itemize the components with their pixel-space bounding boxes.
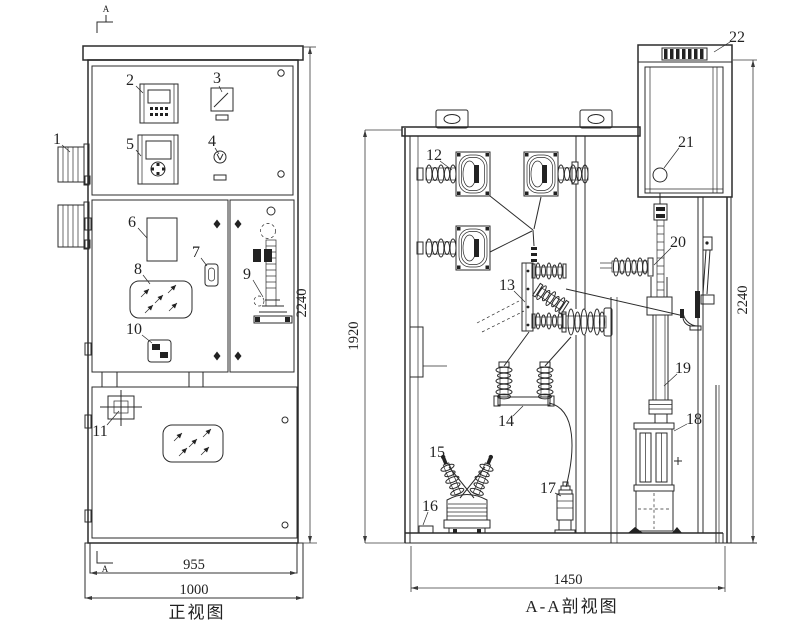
dim-1000: 1000 (180, 582, 209, 598)
cabinet-outline (83, 46, 303, 598)
callout-13: 13 (499, 277, 515, 294)
callout-7: 7 (192, 244, 200, 261)
cable-duct (410, 327, 423, 377)
observation-window (130, 281, 192, 318)
callout-20: 20 (670, 234, 686, 251)
callout-5: 5 (126, 136, 134, 153)
section-callouts: 12 13 14 15 16 17 18 19 20 21 22 (422, 29, 745, 525)
panel-meter (211, 88, 233, 120)
screw (282, 522, 288, 528)
instrument-door (92, 66, 293, 195)
control-switch (214, 151, 226, 180)
pressure-relief-duct (638, 45, 732, 197)
callout-1: 1 (53, 131, 61, 148)
callout-11: 11 (92, 423, 107, 440)
screw (278, 171, 284, 177)
callout-4: 4 (208, 133, 216, 150)
voltage-transformer (436, 452, 498, 533)
indicator-block (148, 340, 171, 362)
lower-door (92, 387, 297, 538)
drawing-page: A (0, 0, 787, 627)
dim-1920: 1920 (346, 322, 362, 351)
earthing-operation-port (100, 390, 142, 426)
callout-21: 21 (678, 134, 694, 151)
front-callouts: 1 2 3 4 5 6 7 8 9 10 11 (53, 70, 263, 440)
callout-10: 10 (126, 321, 142, 338)
front-view-title: 正视图 (169, 603, 226, 622)
screw (282, 417, 288, 423)
screw (278, 70, 284, 76)
inspection-hole (653, 168, 667, 182)
callout-22: 22 (729, 29, 745, 46)
callout-19: 19 (675, 360, 691, 377)
callout-18: 18 (686, 411, 702, 428)
busbar-assembly (494, 362, 554, 406)
support-base (419, 526, 433, 533)
surge-arrester (555, 482, 575, 533)
lifting-lug (580, 110, 612, 128)
section-view-title: A-A剖视图 (525, 597, 618, 616)
nameplate (147, 218, 177, 261)
dim-955: 955 (183, 557, 205, 573)
callout-3: 3 (213, 70, 221, 87)
callout-9: 9 (243, 266, 251, 283)
through-wall-bushing (562, 308, 612, 336)
callout-14: 14 (498, 413, 514, 430)
callout-15: 15 (429, 444, 445, 461)
dim-1450: 1450 (554, 572, 583, 588)
engineering-drawing: A (0, 0, 787, 627)
callout-6: 6 (128, 214, 136, 231)
section-cut-marker-top: A (97, 4, 113, 33)
callout-17: 17 (540, 480, 556, 497)
callout-16: 16 (422, 498, 438, 515)
conductors (490, 196, 684, 487)
front-view: A (53, 4, 317, 622)
section-letter-top: A (103, 4, 110, 14)
middle-doors (92, 200, 294, 372)
dim-2240-front: 2240 (294, 289, 310, 318)
wall-bushings (417, 152, 588, 270)
circuit-breaker (628, 423, 682, 533)
measuring-instrument (138, 135, 178, 184)
dim-2240-section: 2240 (735, 286, 751, 315)
protection-relay (140, 84, 178, 123)
observation-window (163, 425, 223, 462)
callout-2: 2 (126, 72, 134, 89)
side-cable-bushings (58, 144, 90, 249)
door-handle (205, 264, 218, 286)
lifting-lug (436, 110, 468, 128)
disconnector (477, 263, 569, 332)
section-cut-marker-bottom: A (97, 551, 113, 574)
earthing-switch-mechanism (253, 224, 292, 324)
section-letter-bottom: A (102, 564, 109, 574)
lock-hole (267, 207, 275, 215)
callout-8: 8 (134, 261, 142, 278)
operating-rod (654, 193, 667, 297)
callout-12: 12 (426, 147, 442, 164)
louver-vent (662, 48, 707, 60)
section-view: 1920 2240 1450 A-A剖视图 12 13 14 15 16 17 … (346, 29, 757, 616)
